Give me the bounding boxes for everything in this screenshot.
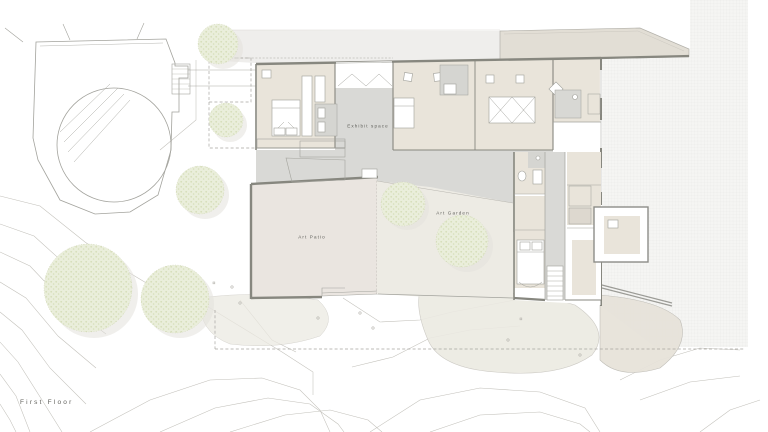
tree [209, 103, 247, 142]
floor-title: First Floor [20, 399, 73, 406]
site-plan-drawing [0, 0, 768, 432]
art-garden-label: Art Garden [436, 211, 469, 216]
tree [44, 244, 138, 338]
terrain-patches [200, 290, 683, 373]
adjacent-building [5, 23, 188, 214]
tree [176, 166, 229, 219]
exhibit-space-label: Exhibit space [347, 124, 389, 129]
tree [141, 265, 214, 338]
canopy-roof [500, 28, 689, 60]
floor-plan-page: { "plan": { "floor_label": "First Floor"… [0, 0, 768, 432]
art-patio-label: Art Patio [298, 235, 326, 240]
walkway [172, 64, 256, 94]
terrace-room [594, 207, 648, 262]
east-wing [514, 152, 601, 306]
